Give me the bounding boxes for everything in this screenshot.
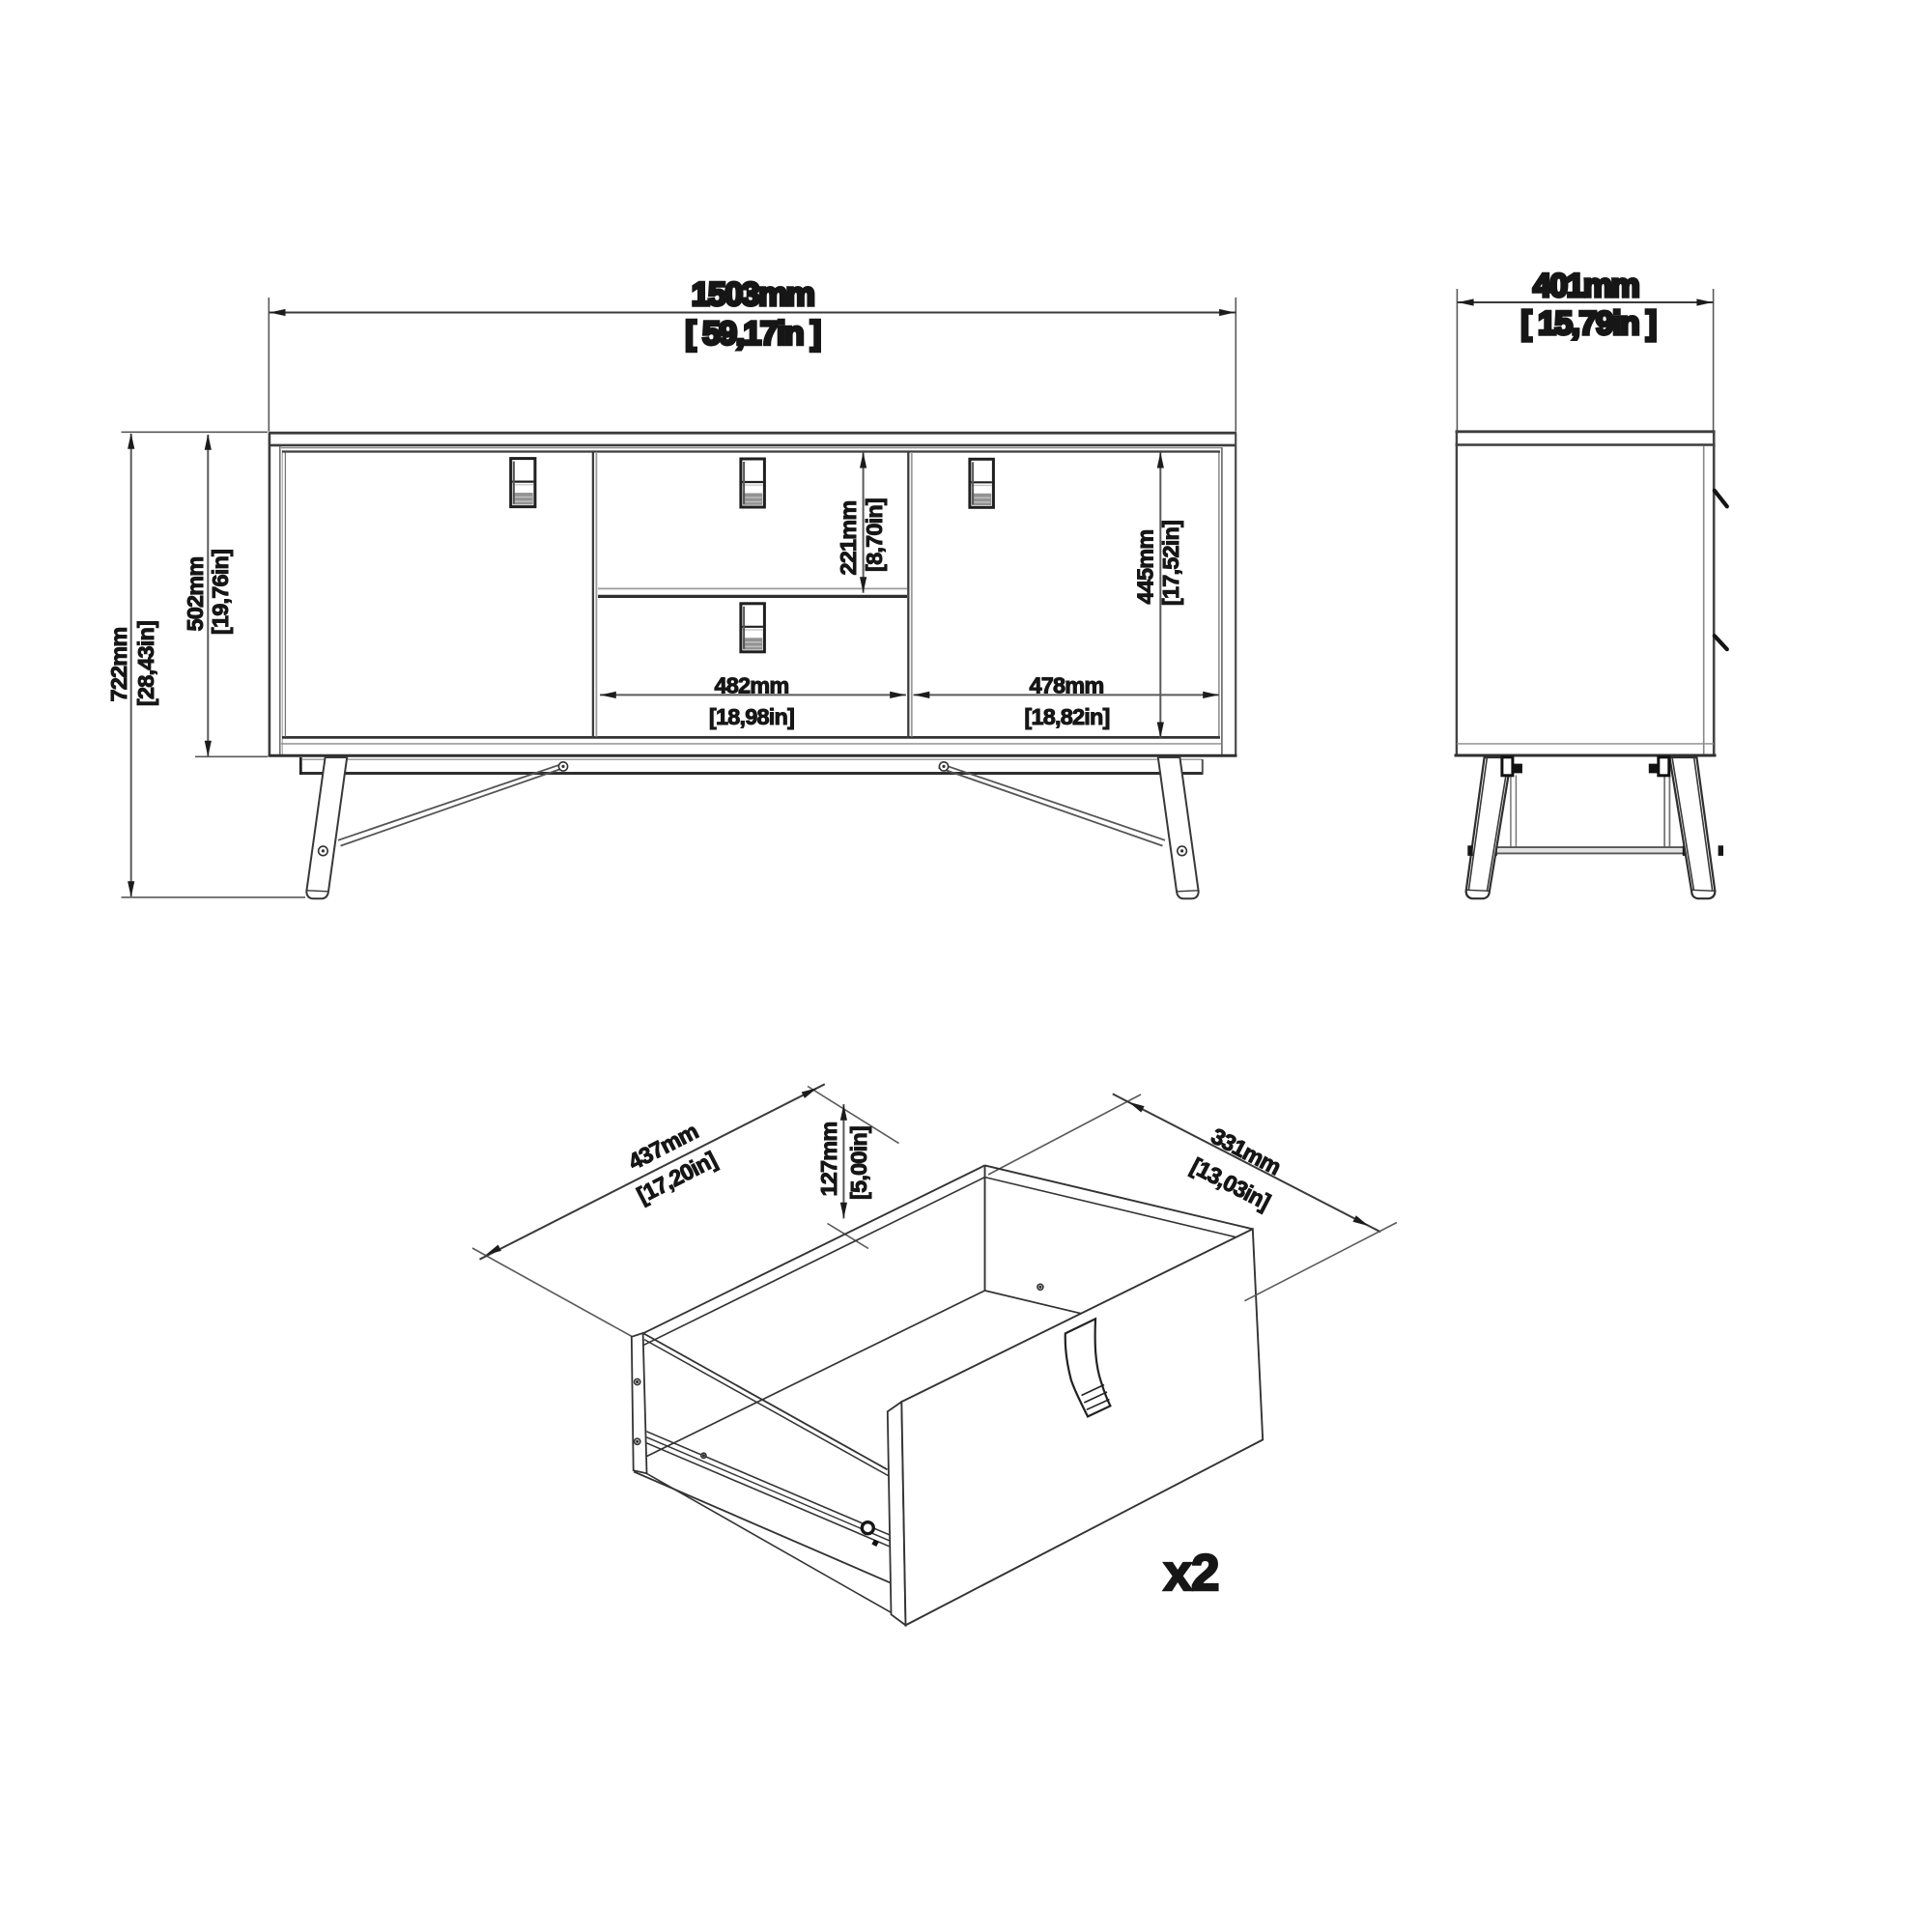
- svg-text:[5,00in]: [5,00in]: [846, 1126, 871, 1200]
- svg-text:[19,76in]: [19,76in]: [208, 550, 233, 635]
- svg-text:401mm: 401mm: [1533, 268, 1639, 304]
- svg-text:482mm: 482mm: [715, 673, 789, 698]
- svg-text:1503mm: 1503mm: [692, 276, 814, 313]
- svg-text:[8,70in]: [8,70in]: [862, 498, 887, 572]
- svg-text:[18,82in]: [18,82in]: [1024, 704, 1109, 729]
- svg-text:[28,43in]: [28,43in]: [133, 621, 158, 706]
- svg-text:221mm: 221mm: [836, 501, 861, 576]
- svg-text:x2: x2: [1164, 1545, 1219, 1602]
- svg-text:502mm: 502mm: [183, 557, 208, 632]
- svg-text:127mm: 127mm: [816, 1122, 841, 1197]
- svg-text:[17,52in]: [17,52in]: [1158, 521, 1183, 606]
- svg-text:478mm: 478mm: [1030, 673, 1104, 698]
- svg-text:722mm: 722mm: [106, 628, 131, 702]
- svg-text:[ 59,17in ]: [ 59,17in ]: [685, 316, 820, 353]
- svg-text:445mm: 445mm: [1133, 530, 1158, 605]
- svg-text:[18,98in]: [18,98in]: [709, 704, 794, 729]
- svg-text:[ 15,79in ]: [ 15,79in ]: [1520, 305, 1656, 342]
